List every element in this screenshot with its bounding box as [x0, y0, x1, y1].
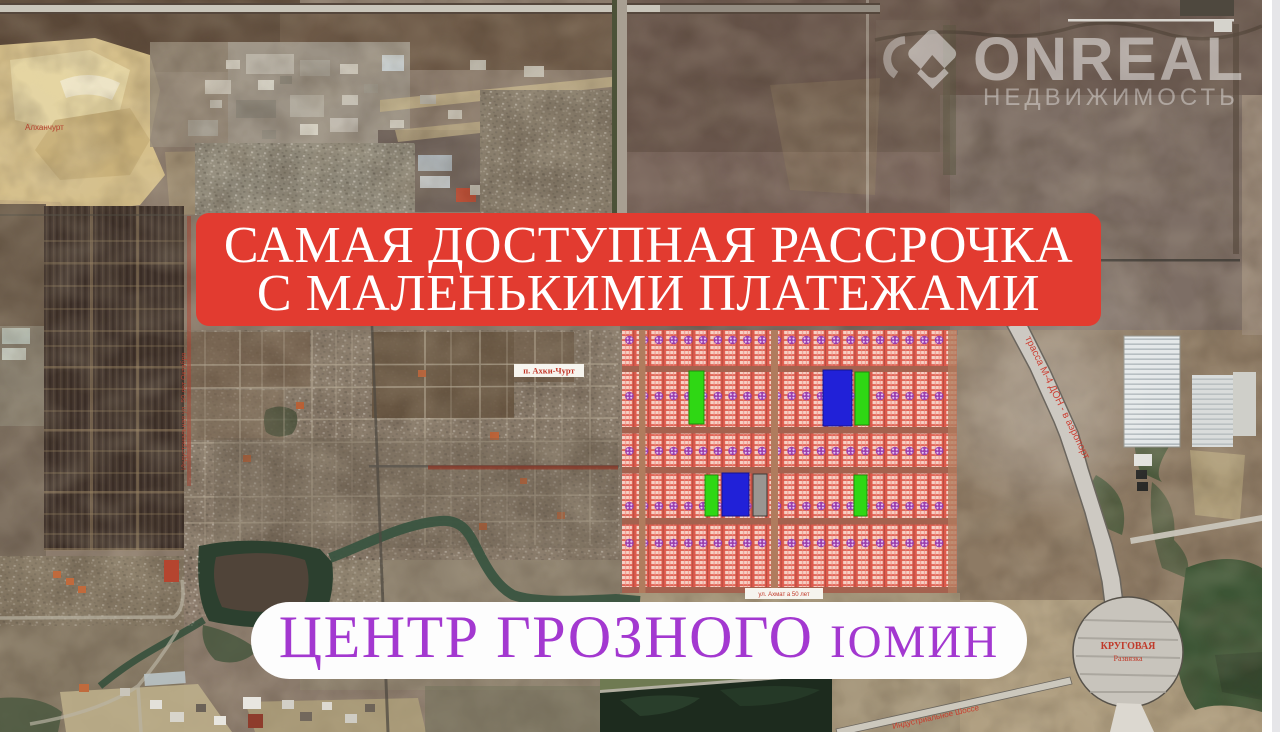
svg-text:КРУГОВАЯ: КРУГОВАЯ — [1101, 641, 1157, 652]
svg-text:ул. Ахмат а 50 лет: ул. Ахмат а 50 лет — [758, 592, 809, 598]
svg-text:п. Ахки-Чурт: п. Ахки-Чурт — [523, 366, 575, 376]
svg-text:Развязка: Развязка — [1114, 654, 1143, 663]
svg-text:НЕДВИЖИМОСТЬ: НЕДВИЖИМОСТЬ — [983, 84, 1239, 111]
svg-text:ONREAL: ONREAL — [973, 25, 1246, 93]
svg-text:Алханчурт: Алханчурт — [25, 123, 64, 132]
